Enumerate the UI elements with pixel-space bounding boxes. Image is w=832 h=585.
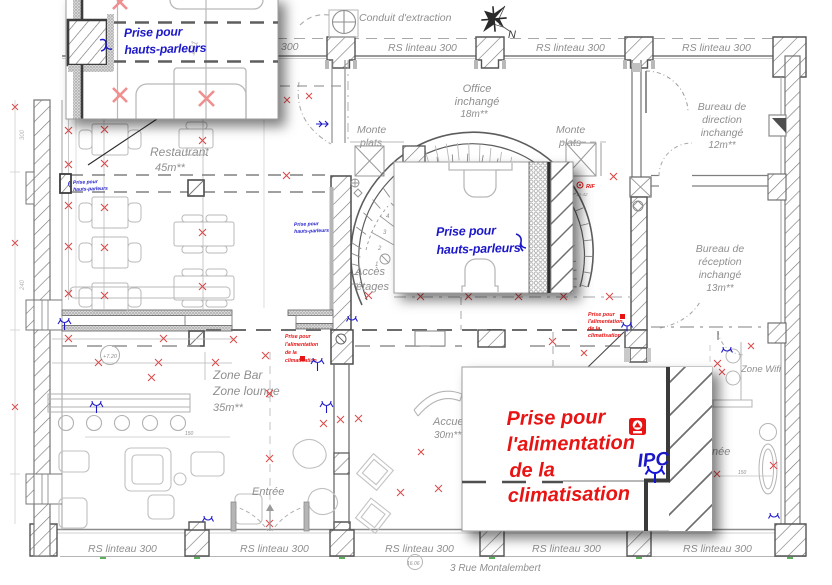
svg-text:direction: direction [702, 114, 742, 126]
svg-text:Zone Bar: Zone Bar [212, 368, 263, 382]
svg-text:de la: de la [588, 326, 600, 332]
svg-text:l'alimentation: l'alimentation [285, 342, 318, 348]
svg-text:+7.20: +7.20 [103, 354, 118, 360]
svg-text:hauts-parleurs: hauts-parleurs [124, 41, 207, 57]
svg-text:Prise pour: Prise pour [73, 179, 99, 186]
svg-text:Bureau de: Bureau de [696, 243, 745, 255]
svg-text:Prise pour: Prise pour [124, 24, 184, 40]
svg-text:inchangé: inchangé [701, 127, 744, 139]
svg-text:IPC: IPC [637, 449, 670, 472]
svg-text:240: 240 [20, 279, 26, 291]
svg-text:réception: réception [698, 256, 741, 268]
svg-text:Prise pour: Prise pour [285, 334, 312, 340]
svg-text:Monte: Monte [556, 124, 585, 136]
svg-text:18m**: 18m** [460, 109, 488, 120]
svg-text:3 Rue Montalembert: 3 Rue Montalembert [450, 563, 542, 574]
svg-text:de la: de la [285, 350, 297, 356]
svg-text:Conduit d'extraction: Conduit d'extraction [359, 12, 452, 24]
svg-text:RS linteau 300: RS linteau 300 [385, 543, 454, 555]
svg-text:Bureau de: Bureau de [698, 101, 747, 113]
svg-text:RS linteau 300: RS linteau 300 [240, 543, 309, 555]
svg-text:étages: étages [356, 281, 390, 293]
svg-text:climatisation: climatisation [508, 483, 631, 507]
svg-text:Prise pour: Prise pour [436, 223, 498, 239]
svg-text:Accès: Accès [354, 266, 385, 278]
svg-text:hauts-parleurs: hauts-parleurs [294, 228, 329, 235]
svg-text:Office: Office [463, 83, 492, 95]
svg-text:300: 300 [20, 129, 26, 140]
svg-text:RS linteau 300: RS linteau 300 [536, 42, 605, 54]
svg-text:16.06: 16.06 [407, 561, 420, 567]
svg-text:12m**: 12m** [708, 140, 736, 151]
svg-text:2: 2 [377, 246, 382, 252]
svg-text:née: née [712, 446, 730, 458]
svg-text:hauts-parleurs: hauts-parleurs [73, 186, 108, 193]
svg-text:plats: plats [359, 137, 383, 149]
svg-text:35m**: 35m** [213, 402, 244, 414]
svg-text:45m**: 45m** [155, 162, 186, 174]
svg-text:Prise pour: Prise pour [506, 406, 607, 430]
svg-text:150: 150 [738, 470, 747, 476]
svg-text:N: N [508, 29, 516, 41]
svg-text:de la: de la [509, 459, 555, 482]
svg-text:inchangé: inchangé [699, 269, 742, 281]
svg-text:300: 300 [281, 41, 299, 53]
svg-text:l'alimentation: l'alimentation [507, 432, 635, 456]
svg-text:inchangé: inchangé [455, 96, 500, 108]
svg-text:RS linteau 300: RS linteau 300 [683, 543, 752, 555]
svg-text:Entrée: Entrée [252, 486, 284, 498]
svg-text:RS linteau 300: RS linteau 300 [388, 42, 457, 54]
svg-text:RS linteau 300: RS linteau 300 [88, 543, 157, 555]
svg-text:Zone Wifi: Zone Wifi [740, 364, 782, 375]
svg-text:Monte: Monte [357, 124, 386, 136]
svg-text:climatisation: climatisation [588, 333, 622, 339]
svg-text:RS linteau 300: RS linteau 300 [682, 42, 751, 54]
svg-text:Prise pour: Prise pour [294, 221, 320, 228]
svg-text:13m**: 13m** [706, 283, 734, 294]
svg-text:Prise pour: Prise pour [588, 312, 616, 318]
svg-text:l'alimentation: l'alimentation [588, 319, 623, 325]
svg-text:16-42: 16-42 [576, 192, 588, 197]
svg-text:RIF: RIF [586, 184, 596, 190]
svg-text:RS linteau 300: RS linteau 300 [532, 543, 601, 555]
svg-text:hauts-parleurs: hauts-parleurs [436, 241, 521, 257]
svg-text:30m**: 30m** [434, 430, 462, 441]
svg-text:150: 150 [185, 431, 194, 437]
